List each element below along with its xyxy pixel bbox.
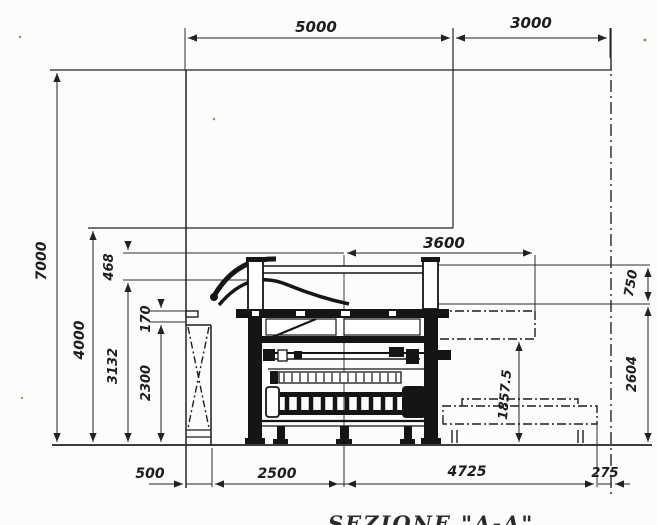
foot-1 xyxy=(245,438,265,444)
dim-label-1857-5: 1857.5 xyxy=(496,369,515,420)
feed-arm-lower-curve xyxy=(219,280,349,305)
dim-label-468: 468 xyxy=(102,253,117,281)
leg-3 xyxy=(404,426,412,440)
platform-feet xyxy=(452,430,583,443)
foot-3 xyxy=(336,439,352,444)
phantom-outlines xyxy=(438,311,597,424)
foot-5 xyxy=(421,438,441,444)
dim-label-5000: 5000 xyxy=(295,18,337,36)
room-outline xyxy=(50,28,652,497)
dimension-lines xyxy=(57,38,648,484)
leg-1 xyxy=(277,426,285,440)
left-post-cap xyxy=(246,257,265,262)
right-side-bracket xyxy=(438,350,451,360)
foot-4 xyxy=(400,439,415,444)
roller-bottom-bar xyxy=(266,410,424,415)
leg-2 xyxy=(340,426,349,440)
dim-label-2300: 2300 xyxy=(139,365,154,401)
machine-installation-section-drawing: 5000 3000 7000 4000 468 3132 170 2300 36… xyxy=(0,0,657,525)
left-post xyxy=(248,260,263,317)
scanned-technical-drawing-page: 5000 3000 7000 4000 468 3132 170 2300 36… xyxy=(0,0,657,525)
frame-opening-left xyxy=(266,319,336,335)
scan-specks xyxy=(19,36,647,399)
x-braced-stand xyxy=(186,325,211,445)
left-end-cap xyxy=(266,387,279,417)
right-post xyxy=(423,260,438,309)
extension-lines xyxy=(123,28,650,487)
frame-opening-right xyxy=(344,319,420,335)
dim-label-275: 275 xyxy=(591,466,618,481)
phantom-table-extension xyxy=(438,311,535,339)
feed-arm-tip xyxy=(211,294,218,301)
dim-label-4000: 4000 xyxy=(72,320,88,360)
dim-label-4725: 4725 xyxy=(447,464,487,480)
drive-motor xyxy=(402,386,426,418)
wall-bracket-and-stand xyxy=(186,311,211,445)
dim-label-7000: 7000 xyxy=(34,241,50,280)
roller-posts xyxy=(287,397,395,410)
dim-label-3000: 3000 xyxy=(510,14,552,32)
dim-label-750: 750 xyxy=(622,269,641,298)
roller-top-bar xyxy=(280,392,402,397)
phantom-floor-platform xyxy=(443,399,597,424)
mid-rail xyxy=(262,336,424,343)
wall-bracket xyxy=(186,311,198,317)
feed-arm-upper-curve xyxy=(214,259,276,296)
dim-label-500: 500 xyxy=(135,466,164,482)
right-post-cap xyxy=(421,257,440,262)
machine-elevation xyxy=(211,257,452,444)
dim-label-2500: 2500 xyxy=(258,466,297,482)
dim-label-170: 170 xyxy=(139,305,154,332)
top-beam xyxy=(258,266,427,273)
dim-label-2604: 2604 xyxy=(625,356,640,392)
foot-2 xyxy=(273,439,288,444)
dim-label-3600: 3600 xyxy=(423,234,465,252)
dim-label-3132: 3132 xyxy=(106,348,121,384)
drawing-caption: SEZIONE "A-A" xyxy=(328,511,534,525)
